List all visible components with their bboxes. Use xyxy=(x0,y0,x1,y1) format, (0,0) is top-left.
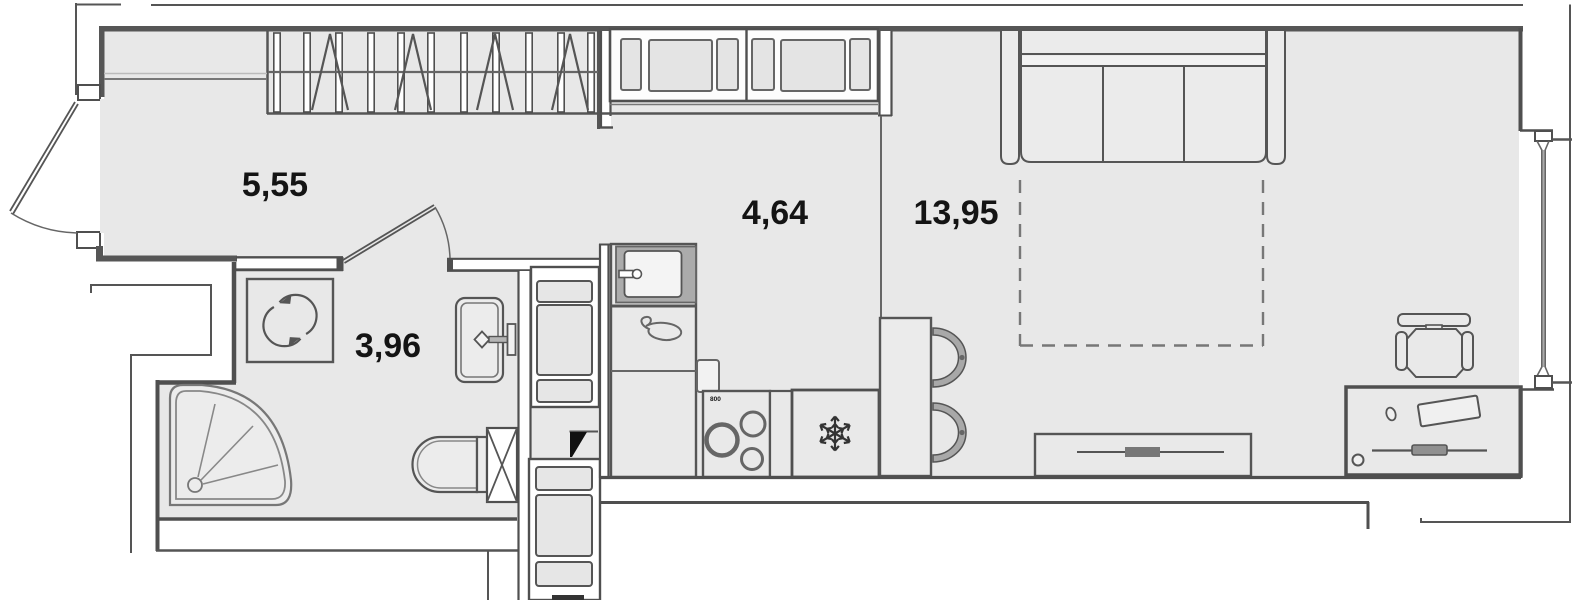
svg-text:3,96: 3,96 xyxy=(355,327,421,365)
svg-text:5,55: 5,55 xyxy=(242,166,308,204)
svg-text:800: 800 xyxy=(710,396,721,403)
svg-text:4,64: 4,64 xyxy=(742,194,808,232)
svg-text:13,95: 13,95 xyxy=(913,194,998,232)
